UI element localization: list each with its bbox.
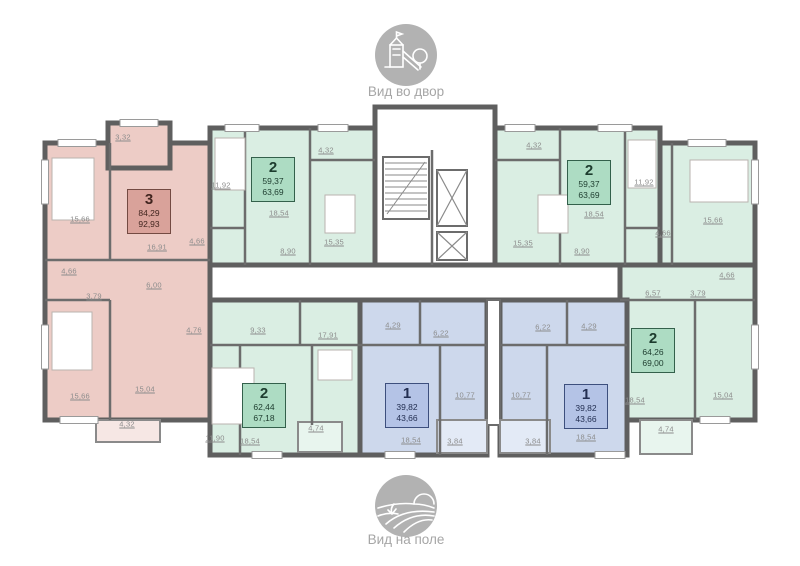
room-area-label: 4,66 [655,229,670,238]
room-area-label: 4,29 [581,322,596,331]
apartment-rooms: 2 [568,162,610,179]
room-area-label: 15,04 [135,385,155,394]
field-view-caption: Вид на поле [296,532,516,547]
room-area-label: 17,91 [318,331,338,340]
room-area-label: 4,66 [189,237,204,246]
room-area-label: 18,54 [625,396,645,405]
room-area-label: 4,32 [119,420,134,429]
room-area-label: 18,54 [240,437,260,446]
room-area-label: 16,91 [147,243,167,252]
room-area-label: 18,54 [576,433,596,442]
room-area-label: 4,32 [526,141,541,150]
room-area-label: 15,66 [70,392,90,401]
apartment-rooms: 1 [565,386,607,403]
room-area-label: 3,84 [525,437,540,446]
room-area-label: 3,84 [447,437,462,446]
apartment-total-area: 92,93 [128,219,170,230]
apartment-rooms: 2 [252,159,294,176]
room-area-label: 11,90 [205,434,224,443]
apartment-total-area: 63,69 [568,190,610,201]
floorplan-page: Вид во двор Вид на поле 3 84,29 92,93 2 … [0,0,800,566]
room-area-label: 6,22 [433,329,448,338]
apartment-living-area: 59,37 [252,176,294,187]
room-area-label: 15,66 [703,216,723,225]
field-icon [375,475,437,537]
apartment-card-2-top-right[interactable]: 2 59,37 63,69 [567,160,611,205]
room-area-label: 11,92 [634,178,653,187]
apartment-total-area: 43,66 [565,414,607,425]
apartment-rooms: 3 [128,191,170,208]
room-area-label: 6,00 [146,281,161,290]
courtyard-view-caption: Вид во двор [296,84,516,99]
room-area-label: 4,74 [658,425,673,434]
apartment-card-3-left[interactable]: 3 84,29 92,93 [127,189,171,234]
room-area-label: 18,54 [401,436,421,445]
apartment-total-area: 43,66 [386,413,428,424]
apartment-card-2-top-left[interactable]: 2 59,37 63,69 [251,157,295,202]
apartment-living-area: 64,26 [632,347,674,358]
room-area-label: 8,90 [574,247,589,256]
room-area-label: 6,22 [535,323,550,332]
playground-icon [375,24,437,86]
apartment-living-area: 39,82 [565,403,607,414]
apartment-living-area: 39,82 [386,402,428,413]
room-area-label: 4,32 [318,146,333,155]
room-area-label: 3,32 [115,133,130,142]
room-area-label: 18,54 [584,210,604,219]
room-area-label: 8,90 [280,247,295,256]
room-area-label: 15,04 [713,391,733,400]
room-area-label: 4,66 [719,271,734,280]
apartment-living-area: 62,44 [243,402,285,413]
room-area-label: 6,57 [645,289,660,298]
apartment-card-1-bottom-right[interactable]: 1 39,82 43,66 [564,384,608,429]
room-area-label: 10,77 [455,391,475,400]
room-area-label: 4,29 [385,321,400,330]
apartment-rooms: 2 [243,385,285,402]
room-area-label: 9,33 [250,326,265,335]
room-area-label: 3,79 [690,289,705,298]
room-area-label: 15,35 [513,239,533,248]
apartment-living-area: 59,37 [568,179,610,190]
room-area-label: 10,77 [511,391,531,400]
room-area-label: 3,79 [86,292,101,301]
apartment-total-area: 63,69 [252,187,294,198]
apartment-card-1-bottom-left[interactable]: 1 39,82 43,66 [385,383,429,428]
room-area-label: 18,54 [269,209,289,218]
room-area-label: 15,35 [324,238,344,247]
room-area-label: 11,92 [211,181,230,190]
apartment-total-area: 69,00 [632,358,674,369]
room-area-label: 4,74 [308,424,323,433]
apartment-card-2-bottom-left[interactable]: 2 62,44 67,18 [242,383,286,428]
room-area-label: 4,76 [186,326,201,335]
apartment-rooms: 2 [632,330,674,347]
apartment-total-area: 67,18 [243,413,285,424]
apartment-rooms: 1 [386,385,428,402]
apartment-living-area: 84,29 [128,208,170,219]
room-area-label: 4,66 [61,267,76,276]
room-area-label: 15,66 [70,215,90,224]
apartment-card-2-right[interactable]: 2 64,26 69,00 [631,328,675,373]
